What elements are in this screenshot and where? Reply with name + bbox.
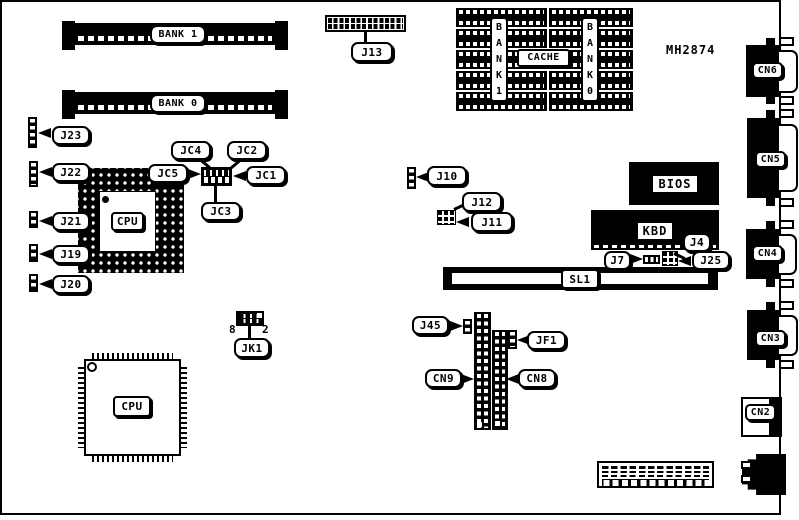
cn6-mount-tab-top	[779, 37, 794, 46]
board-outline-left	[0, 0, 2, 514]
qfp-leads-bottom	[92, 456, 173, 462]
jk1-label: JK1	[234, 338, 270, 358]
cn2-label: CN2	[745, 404, 776, 421]
cn4-label: CN4	[752, 245, 783, 262]
cn3-mount-nub-top	[766, 302, 775, 310]
j22-header	[29, 161, 38, 187]
j45-leader	[450, 321, 463, 331]
bank1-slot-label: BANK 1	[150, 25, 206, 44]
j45-label: J45	[412, 316, 449, 335]
bank1-slot-clip-right	[275, 21, 288, 50]
din-connector-notch	[741, 475, 752, 483]
motherboard-diagram: BANK 1 BANK 0 J13 B A N K 1 B A N K 0 CA…	[0, 0, 799, 520]
j11-leader	[456, 217, 469, 227]
power-connector-sockets	[602, 479, 709, 487]
j21-leader	[39, 216, 52, 226]
j45-header	[463, 319, 472, 334]
jk1-leader	[248, 325, 251, 339]
bios-label: BIOS	[653, 176, 697, 192]
j19-label: J19	[52, 245, 90, 264]
j10-header	[407, 167, 416, 189]
jc5-leader	[188, 169, 201, 179]
cn4-mount-nub-bottom	[766, 279, 775, 287]
cn5-mount-tab-bottom	[779, 198, 794, 207]
sl1-label: SL1	[561, 269, 599, 289]
j25-leader	[678, 256, 691, 266]
cn9-pin1-marker	[477, 422, 482, 427]
jc1-label: JC1	[246, 166, 286, 185]
qfp-pin1-circle	[87, 362, 97, 372]
cn5-mount-nub-bottom	[766, 198, 775, 206]
cpu-pin1-dot	[102, 196, 109, 203]
jc3-label: JC3	[201, 202, 241, 221]
cn8-pin1-marker	[495, 421, 500, 426]
jc1-leader	[233, 171, 246, 181]
cpu-socket-label: CPU	[111, 212, 144, 231]
cn8-pin-column	[495, 332, 499, 428]
j19-leader	[39, 249, 52, 259]
jf1-label: JF1	[527, 331, 566, 350]
j13-label: J13	[351, 42, 393, 62]
power-connector-pins	[602, 466, 709, 473]
cn3-mount-tab-top	[779, 301, 794, 310]
j13-header-pin-row	[328, 18, 403, 23]
j19-header	[29, 244, 38, 262]
cn9-label: CN9	[425, 369, 462, 388]
jc2-leader	[229, 159, 241, 170]
bank0-slot-clip-right	[275, 90, 288, 119]
j11-label: J11	[471, 212, 513, 232]
kbd-label: KBD	[638, 223, 672, 239]
cn3-mount-nub-bottom	[766, 360, 775, 368]
jk1-pin8-label: 8	[229, 324, 236, 335]
cn6-label: CN6	[752, 62, 783, 79]
cn6-mount-nub-bottom	[766, 96, 775, 104]
jc-jumper-block-row	[204, 177, 229, 183]
jk1-pin-marker	[257, 313, 262, 318]
cn4-mount-tab-top	[779, 220, 794, 229]
j7-leader	[630, 254, 643, 264]
jc4-label: JC4	[171, 141, 211, 160]
cache-label: CACHE	[517, 49, 570, 67]
j12-label: J12	[462, 192, 502, 212]
jc3-leader	[214, 184, 217, 203]
cn6-mount-nub-top	[766, 38, 775, 46]
j13-header-pin-row	[328, 24, 403, 29]
cn9-pin-column	[477, 314, 481, 428]
j20-leader	[39, 279, 52, 289]
cache-bank0-label: B A N K 0	[581, 17, 599, 102]
power-connector	[597, 461, 714, 488]
cn8-pin-column	[502, 332, 506, 428]
bank0-slot-label: BANK 0	[150, 94, 206, 113]
jf1-header	[508, 330, 517, 349]
bank0-slot-clip-left	[62, 90, 75, 119]
qfp-cpu-label: CPU	[113, 396, 151, 417]
cn5-label: CN5	[755, 151, 786, 168]
j23-header	[28, 117, 37, 148]
cn9-pin-column	[484, 314, 488, 428]
j10-label: J10	[427, 166, 467, 186]
cn9-leader	[461, 374, 474, 384]
cn4-mount-nub-top	[766, 221, 775, 229]
j25-label: J25	[692, 251, 730, 270]
j20-label: J20	[52, 275, 90, 294]
jc5-label: JC5	[148, 164, 188, 183]
board-outline-top	[0, 0, 781, 2]
j4-label: J4	[683, 233, 711, 252]
cn4-mount-tab-bottom	[779, 279, 794, 288]
j23-leader	[38, 128, 51, 138]
cn9-header	[474, 312, 491, 430]
jk1-header-row	[239, 319, 261, 323]
j21-header	[29, 211, 38, 228]
j7-header	[643, 255, 660, 264]
j23-label: J23	[52, 126, 90, 145]
jc-jumper-block-row	[204, 170, 229, 176]
bank1-slot-clip-left	[62, 21, 75, 50]
din-connector-notch	[741, 461, 752, 469]
j22-label: J22	[52, 163, 90, 182]
j20-header	[29, 274, 38, 292]
qfp-leads-right	[181, 367, 187, 448]
power-connector-divider	[602, 475, 709, 477]
cn3-mount-tab-bottom	[779, 360, 794, 369]
jk1-pin2-label: 2	[262, 324, 269, 335]
cn8-label: CN8	[518, 369, 556, 388]
j22-leader	[39, 167, 52, 177]
cache-bank1-label: B A N K 1	[490, 17, 508, 102]
j11-j12-header	[437, 210, 456, 225]
cn5-mount-nub-top	[766, 110, 775, 118]
cn6-mount-tab-bottom	[779, 96, 794, 105]
j21-label: J21	[52, 212, 90, 231]
jc2-label: JC2	[227, 141, 267, 160]
part-number-text: MH2874	[666, 44, 715, 56]
j7-label: J7	[604, 251, 631, 270]
cn5-mount-tab-top	[779, 109, 794, 118]
board-outline-bottom	[0, 513, 781, 515]
cn3-label: CN3	[755, 330, 786, 347]
